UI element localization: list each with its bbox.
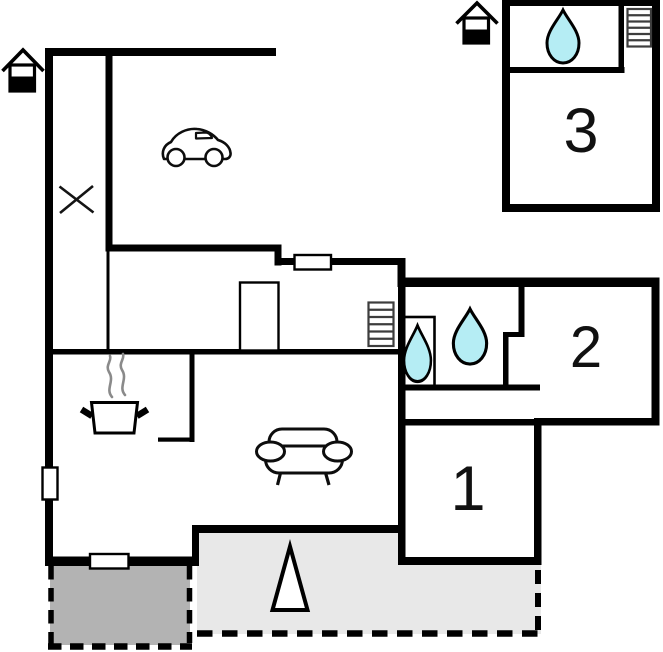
stairs-icon xyxy=(628,9,652,47)
wall xyxy=(400,419,538,426)
bedroom-2-label: 2 xyxy=(570,315,602,380)
wall xyxy=(519,284,525,337)
wall xyxy=(503,332,509,389)
wall xyxy=(508,67,625,73)
sofa-icon xyxy=(257,429,352,485)
wall xyxy=(107,249,110,353)
wall xyxy=(192,525,406,533)
wall xyxy=(45,48,276,56)
bedroom-3-label: 3 xyxy=(563,96,598,166)
car-wheel xyxy=(168,149,185,166)
cooking-pot-icon xyxy=(82,354,148,433)
wall xyxy=(502,0,660,6)
water-drop-icon xyxy=(547,10,579,63)
wall xyxy=(534,418,542,565)
terrace-light xyxy=(197,533,541,634)
floor-plan: 1 2 3 xyxy=(0,0,663,652)
pot-handle xyxy=(137,410,148,417)
wall xyxy=(502,0,510,212)
water-drop xyxy=(404,325,431,381)
car-icon xyxy=(163,129,231,166)
wall xyxy=(106,245,282,252)
car-wheel xyxy=(206,149,223,166)
window-marker xyxy=(90,554,129,569)
house-entrance-icon xyxy=(3,50,44,93)
sofa-armrest xyxy=(257,442,285,461)
water-drop xyxy=(547,10,579,63)
wall xyxy=(619,0,625,72)
patio-fill xyxy=(50,566,190,645)
bedroom-1-label: 1 xyxy=(450,454,485,524)
water-drop xyxy=(453,309,486,364)
water-drop-icon xyxy=(453,309,486,364)
closet xyxy=(240,283,279,351)
sofa-armrest xyxy=(324,442,352,461)
house-entrance-icon xyxy=(457,3,498,45)
water-drop-icon xyxy=(404,325,431,381)
pot-handle xyxy=(82,410,93,417)
floor-plan-svg: 1 2 3 xyxy=(0,0,663,652)
wall xyxy=(652,0,660,212)
stairs-icon xyxy=(369,303,394,347)
window-marker xyxy=(295,255,332,270)
wall xyxy=(158,438,191,442)
steam-icon xyxy=(108,356,112,397)
wall xyxy=(652,278,660,426)
terrace-fill xyxy=(197,533,541,634)
pot-body xyxy=(92,403,138,434)
x-mark xyxy=(60,186,94,213)
x-mark-icon xyxy=(60,186,94,213)
car-window xyxy=(196,133,212,139)
wall xyxy=(398,557,542,565)
house-base xyxy=(463,30,491,45)
wall xyxy=(502,204,660,212)
wall xyxy=(535,418,659,426)
steam-icon xyxy=(121,354,125,395)
closet-outline xyxy=(240,283,279,351)
wall xyxy=(190,352,195,442)
wall xyxy=(48,349,405,355)
house-base xyxy=(9,77,37,93)
wall xyxy=(398,278,660,288)
wall xyxy=(106,48,113,249)
window-marker xyxy=(43,468,58,500)
patio-dark xyxy=(48,566,192,647)
